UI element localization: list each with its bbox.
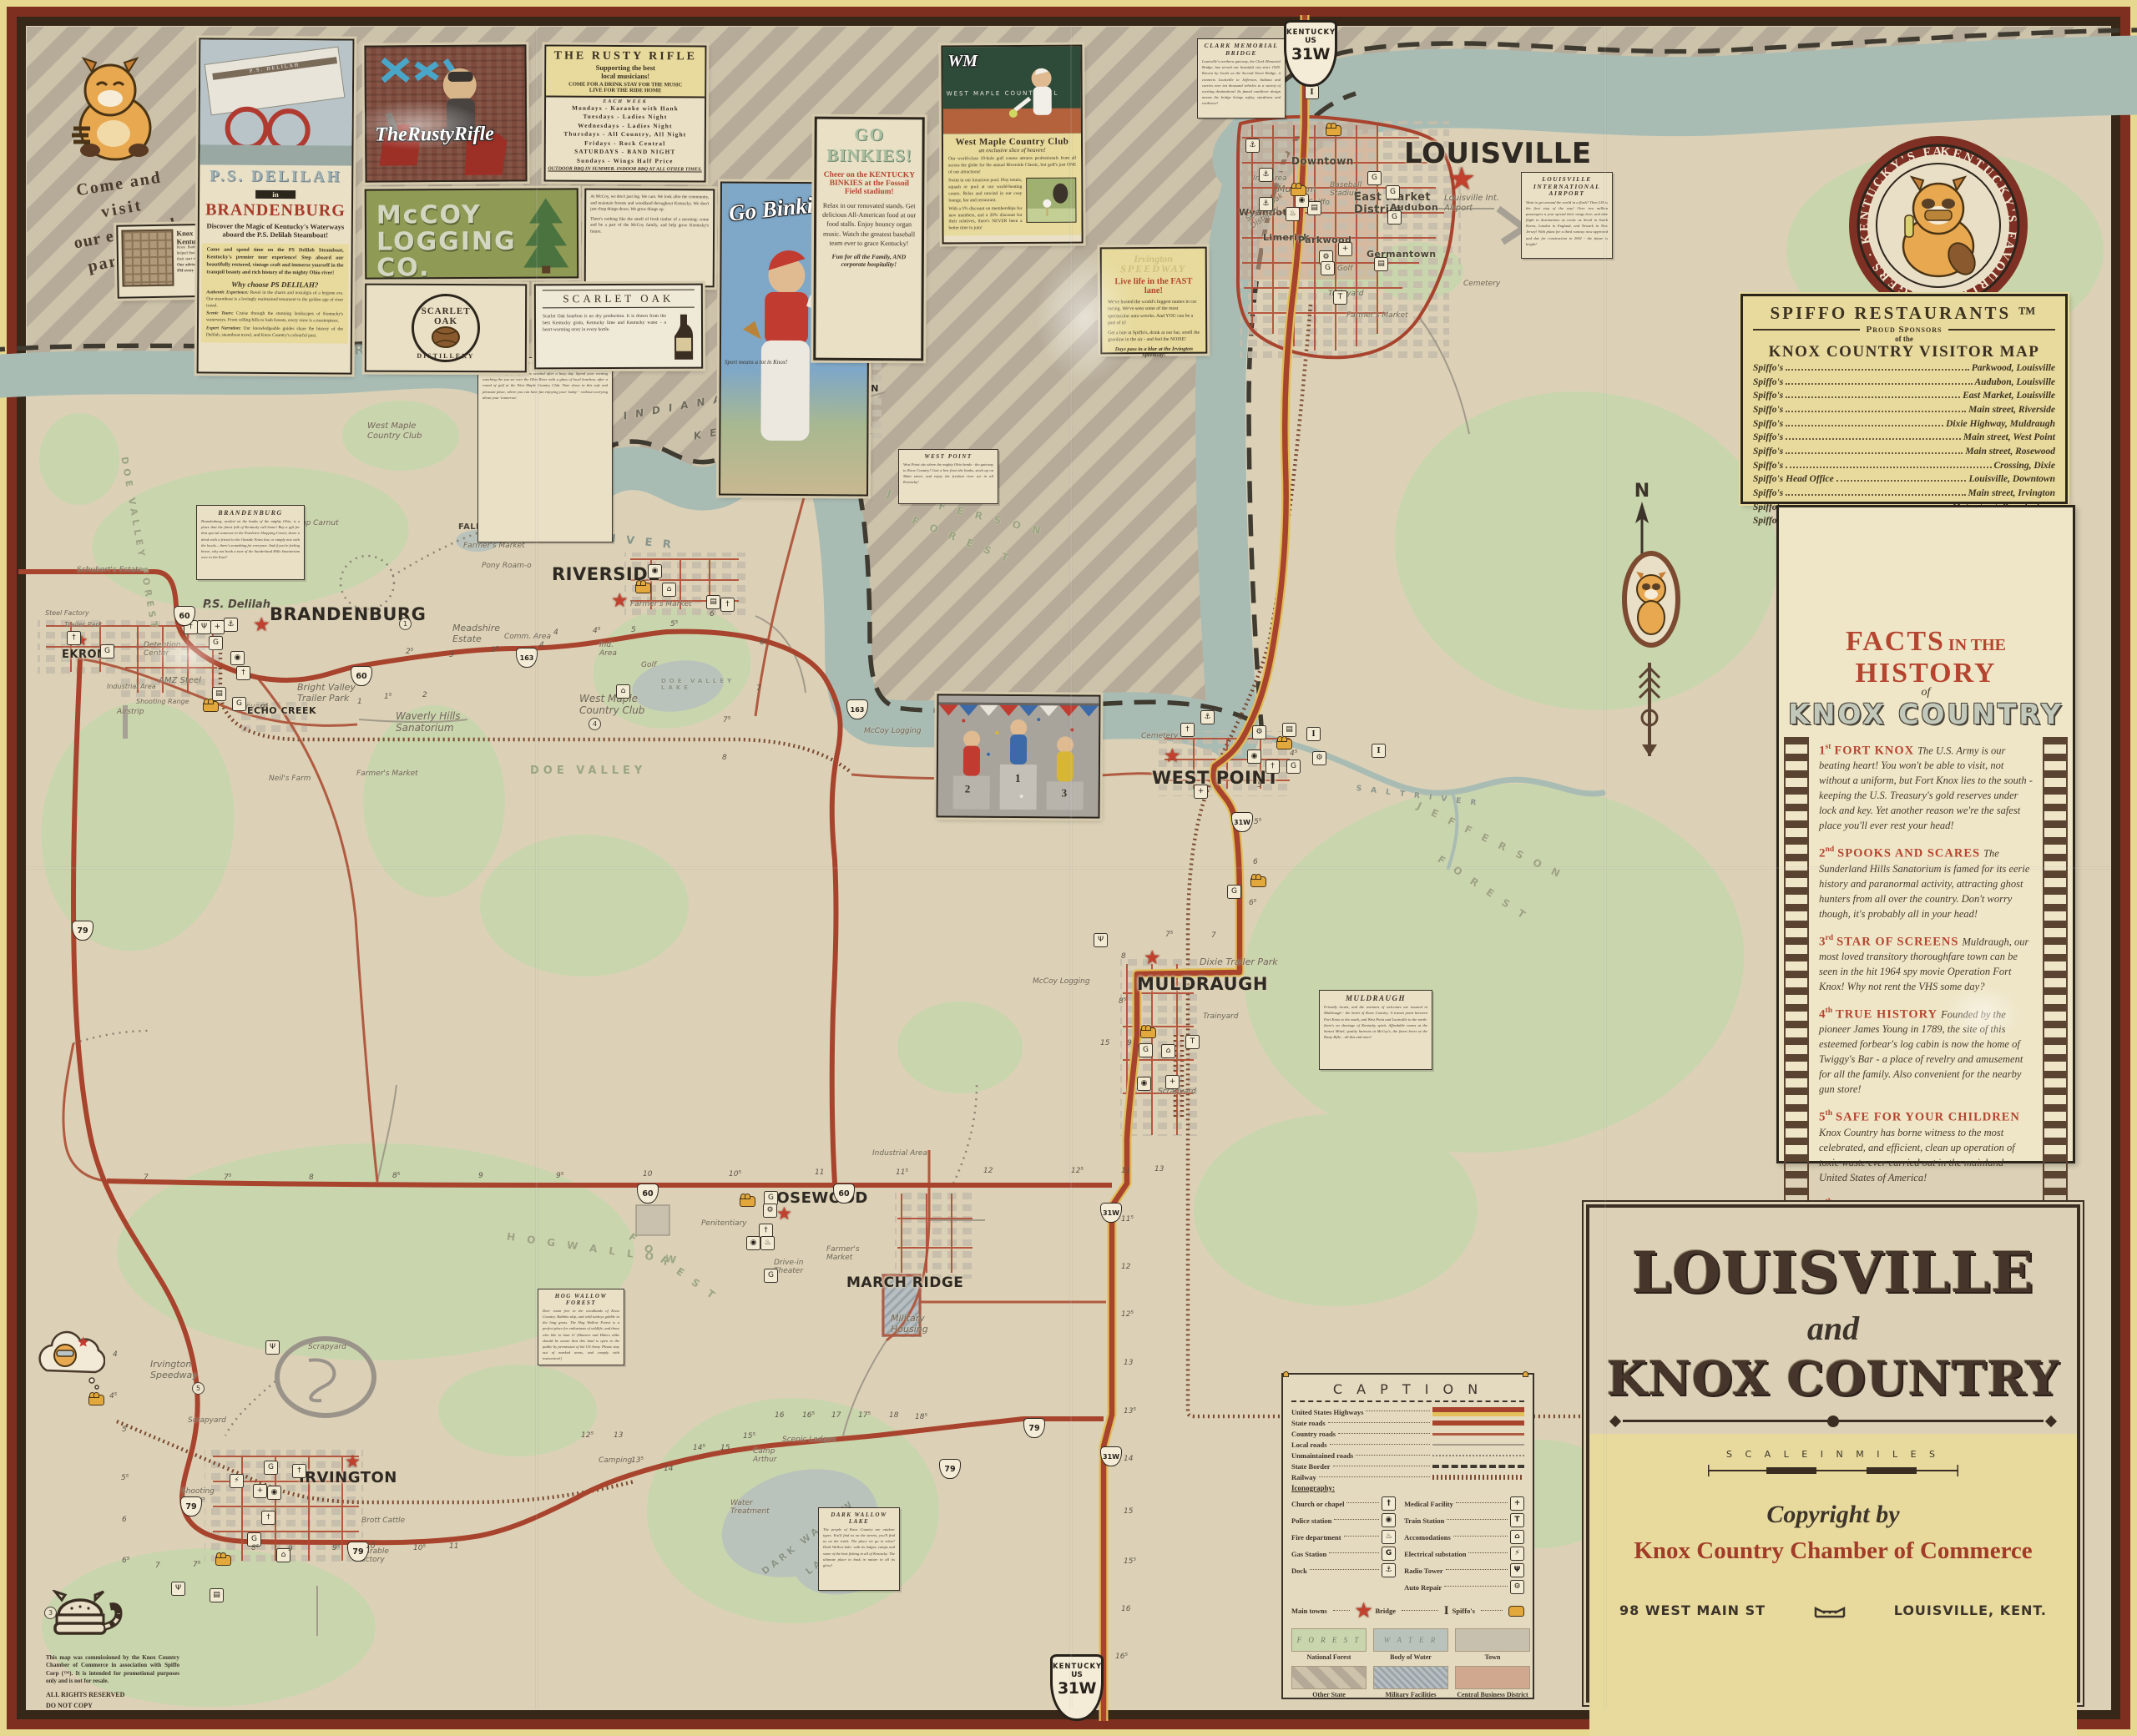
mile-marker: 4⁵ [593, 627, 600, 635]
mile-marker: 8⁵ [392, 1172, 400, 1180]
route-shield: 31W [1231, 812, 1253, 832]
map-church-icon: † [1266, 759, 1280, 774]
mile-marker: 1⁵ [384, 693, 392, 701]
map-bridge-icon: I [1306, 727, 1321, 741]
mile-marker: 7⁵ [723, 716, 730, 724]
map-label: Camp Arthur [753, 1447, 777, 1465]
map-label: Steel Factory [45, 609, 89, 617]
map-note-title: MULDRAUGH [1324, 994, 1427, 1002]
route-shield: 163 [846, 699, 868, 719]
spiffo-mascot [58, 48, 167, 169]
mile-marker: 14 [664, 1465, 673, 1473]
scale-label: S C A L E I N M I L E S [1589, 1449, 2077, 1460]
map-note-body: The people of Knox Country are outdoor t… [823, 1527, 895, 1568]
map-note-body: Deer roam free in the woodlands of Knox … [543, 1308, 619, 1361]
map-label: Cemetery [1463, 280, 1500, 288]
mile-marker: 6 [710, 610, 715, 618]
map-label: Drive-in Theater [774, 1259, 803, 1276]
map-church-icon: † [236, 666, 250, 680]
map-label: P.S. Delilah [203, 599, 270, 612]
map-gas-icon: G [1139, 1043, 1153, 1057]
map-radio-icon: Ψ [1094, 933, 1108, 947]
spiffo-restaurant-icon [1276, 739, 1292, 749]
mile-marker: 7 [144, 1173, 149, 1182]
spiffo-face-icon [1811, 1600, 1849, 1620]
mile-marker: 4 [553, 628, 558, 637]
copyright-holder: Knox Country Chamber of Commerce [1589, 1537, 2077, 1565]
map-bed-icon: ⌂ [662, 583, 676, 597]
ps-delilah-ad: P.S. DELILAH P.S. DELILAH in BRANDENBURG… [197, 38, 355, 374]
map-police-icon: ◉ [648, 564, 662, 578]
legend-icons-left: Church or chapel†Police station◉Fire dep… [1291, 1494, 1396, 1597]
mile-marker: 7 [155, 1562, 160, 1570]
map-auto-icon: ⚙ [763, 1204, 777, 1218]
mile-marker: 5 [1257, 781, 1262, 790]
map-note-box: DARK WALLOW LAKEThe people of Knox Count… [818, 1507, 900, 1591]
mile-marker: 8 [722, 754, 727, 762]
map-gas-icon: G [1321, 261, 1335, 275]
map-auto-icon: ⚙ [1252, 725, 1266, 739]
map-note-title: LOUISVILLE INTERNATIONAL AIRPORT [1526, 176, 1608, 198]
map-label: Dixie Trailer Park [1200, 957, 1278, 968]
map-note-box: RIVERSIDERiverside: the perfect place to… [477, 357, 613, 542]
map-label: Farmer's Market [463, 542, 525, 550]
mile-marker: 11⁵ [896, 1168, 908, 1177]
map-note-body: West Point sits where the mighty Ohio be… [903, 462, 993, 485]
mile-marker: 9 [1127, 1039, 1132, 1047]
rusty-schedule: Mondays - Karaoke with HankTuesdays - La… [548, 104, 703, 166]
map-med-icon: + [253, 1484, 267, 1498]
route-shield: 79 [72, 921, 93, 941]
map-label: Penitentiary [701, 1219, 747, 1228]
map-label: Schubert's Estate [77, 566, 143, 574]
map-note-box: HOG WALLOW FORESTDeer roam free in the w… [538, 1289, 624, 1365]
mile-marker: 7⁵ [224, 1173, 231, 1182]
spiffo-restaurant-icon [635, 583, 651, 593]
mile-marker: 7 [1211, 931, 1216, 940]
map-note-body: Louisville's northern gateway, the Clark… [1202, 58, 1281, 106]
mile-marker: 8⁵ [1119, 997, 1126, 1006]
circled-number: 5 [192, 1382, 205, 1395]
commission-note: This map was commissioned by the Knox Co… [46, 1654, 179, 1709]
mile-marker: 12⁵ [581, 1431, 594, 1440]
map-note-body: Want to get around the world in a flash?… [1526, 199, 1608, 247]
rusty-rifle-photo-ad: TheRustyRifle [364, 44, 527, 182]
mile-marker: 17 [831, 1411, 841, 1420]
legend-road-rows: United States HighwaysState roadsCountry… [1291, 1407, 1524, 1481]
map-gas-icon: G [232, 697, 246, 711]
mile-marker: 10⁵ [413, 1544, 426, 1552]
mile-marker: 5 [122, 1426, 127, 1434]
spiffo-restaurant-icon [740, 1196, 755, 1207]
map-label: Golf [1337, 265, 1352, 273]
spiffo-restaurant-icon [1291, 185, 1306, 196]
mile-marker: 12⁵ [1121, 1310, 1134, 1319]
map-label: Detention Center [144, 641, 180, 659]
mile-marker: 0⁵ [260, 704, 268, 712]
map-label: Industrial Area [872, 1149, 927, 1158]
feather-border-right [2043, 737, 2068, 1259]
map-church-icon: † [67, 631, 81, 645]
map-med-icon: + [210, 620, 225, 634]
map-cart-icon: ▤ [706, 595, 720, 609]
map-note-box: CLARK MEMORIAL BRIDGELouisville's northe… [1197, 38, 1286, 119]
map-dock-icon: ⚓ [224, 618, 238, 632]
map-note-body: Riverside: the perfect place to unwind a… [482, 371, 608, 401]
town-star-icon: ★ [611, 591, 629, 610]
map-cart-icon: ▤ [1282, 723, 1296, 737]
map-note-box: LOUISVILLE INTERNATIONAL AIRPORTWant to … [1521, 172, 1613, 259]
kentucky-31w-shield: KENTUCKYUS31W [1284, 20, 1337, 87]
map-label: Irvington Speedway [150, 1360, 198, 1380]
map-dock-icon: ⚓ [1200, 710, 1215, 724]
map-town-label: ECHO CREEK [247, 705, 316, 716]
map-label: McCoy Logging [864, 727, 922, 735]
map-bridge-icon: I [1372, 744, 1386, 758]
circled-number: 4 [589, 718, 601, 730]
mile-marker: 11 [815, 1168, 824, 1177]
mile-marker: 15 [1124, 1507, 1133, 1516]
map-gas-icon: G [1386, 185, 1400, 199]
map-label: Bright Valley Trailer Park [297, 683, 356, 704]
mile-marker: 6⁵ [1249, 899, 1256, 907]
map-label: I N D I A N A [623, 394, 725, 423]
feather-border-left [1784, 737, 1809, 1259]
spiffo-location-list: Spiffo'sParkwood, LouisvilleSpiffo'sAudu… [1753, 361, 2055, 528]
map-police-icon: ◉ [230, 651, 245, 665]
facts-list: 1st FORT KNOX The U.S. Army is our beati… [1809, 737, 2043, 1259]
map-label: Camping [599, 1456, 632, 1465]
map-med-icon: + [1338, 242, 1352, 256]
legend-swatches: F O R E S TNational ForestW A T E RBody … [1291, 1628, 1524, 1698]
circled-number: 1 [399, 618, 412, 630]
map-note-box: WEST POINTWest Point sits where the migh… [898, 449, 998, 504]
spiffo-burger-icon [43, 1590, 127, 1653]
mile-marker: 4⁵ [1290, 749, 1297, 758]
spiffo-restaurant-icon [203, 701, 219, 712]
spiffo-restaurant-icon [215, 1555, 231, 1566]
title-and: and [1589, 1309, 2077, 1348]
map-label: Water Treatment [730, 1499, 770, 1516]
map-radio-icon: Ψ [265, 1340, 280, 1355]
mile-marker: 15⁵ [743, 1432, 755, 1441]
map-label: McCoy Logging [1033, 977, 1090, 986]
mile-marker: 15⁵ [1124, 1557, 1136, 1566]
mile-marker: 18⁵ [915, 1413, 927, 1421]
map-dock-icon: ⚓ [1259, 168, 1273, 182]
map-label: Cemetery [1141, 732, 1178, 740]
map-radio-icon: Ψ [171, 1582, 185, 1596]
map-label: AMZ Steel [159, 676, 201, 686]
spiffo-restaurant-icon [1140, 1027, 1156, 1038]
map-gas-icon: G [100, 644, 114, 659]
map-label: Trainyard [1203, 1012, 1238, 1021]
map-radio-icon: Ψ [197, 620, 211, 634]
mile-marker: 5⁵ [121, 1474, 129, 1482]
map-note-title: BRANDENBURG [201, 509, 300, 517]
delilah-title: P.S. DELILAH [205, 167, 346, 186]
spiffo-oval-portrait [1621, 549, 1681, 654]
bottle-icon [673, 313, 695, 361]
map-fire-icon: ♨ [1286, 207, 1300, 221]
mile-marker: 8⁵ [251, 1544, 259, 1552]
ps-delilah-photo: P.S. DELILAH [200, 39, 352, 165]
mile-marker: 9 [288, 1545, 293, 1553]
rusty-logo: TheRustyRifle [375, 124, 494, 147]
mile-marker: 12⁵ [1071, 1167, 1084, 1175]
mccoy-text-ad: At McCoy, we don't just log. We care. We… [584, 189, 715, 288]
map-label: DOE VALLEY LAKE [661, 678, 735, 691]
map-bed-icon: ⌂ [1161, 1044, 1175, 1058]
mile-marker: 8 [309, 1173, 314, 1182]
mile-marker: 15 [1100, 1039, 1109, 1047]
map-label: Farmer's Market [630, 600, 692, 608]
map-cart-icon: ▤ [212, 687, 226, 701]
bank-photo [121, 230, 174, 287]
mile-marker: 16⁵ [802, 1411, 815, 1420]
map-gas-icon: G [209, 636, 223, 650]
mile-marker: 16 [775, 1411, 784, 1420]
map-label: Golf [641, 661, 656, 669]
mile-marker: 10 [366, 1542, 375, 1551]
map-label: Military Housing [891, 1314, 928, 1335]
map-town-label: MULDRAUGH [1137, 974, 1268, 994]
map-fire-icon: ♨ [760, 1236, 775, 1250]
map-label: Comm. Area [504, 633, 551, 641]
map-note-box: BRANDENBURGBrandenburg, nestled on the b… [196, 505, 305, 580]
route-shield: 31W [1100, 1203, 1122, 1223]
mile-marker: 1 [357, 698, 362, 706]
mile-marker: 3⁵ [491, 646, 498, 654]
map-bed-icon: ⌂ [616, 684, 630, 699]
map-note-box: MULDRAUGHFriendly locals, and the warmes… [1319, 990, 1432, 1070]
map-train-icon: T [1333, 290, 1347, 305]
map-note-title: WEST POINT [903, 453, 993, 460]
mile-marker: 6 [1253, 858, 1258, 866]
mile-marker: 6⁵ [760, 638, 767, 647]
route-shield: 79 [180, 1496, 202, 1516]
mile-marker: 10 [643, 1170, 652, 1178]
mile-marker: 9 [478, 1172, 483, 1180]
route-shield: 60 [351, 666, 372, 686]
binkies-caption: Sport means a lot in Knox! [725, 359, 787, 366]
mile-marker: 3 [449, 651, 454, 659]
mile-marker: 5 [631, 626, 636, 634]
map-cart-icon: ▤ [1374, 257, 1388, 271]
mile-marker: 14 [1124, 1455, 1133, 1463]
mile-marker: 7 [756, 684, 761, 693]
map-med-icon: + [1165, 1075, 1180, 1089]
scarlet-oak-bottle-ad: SCARLET OAK Scarlet Oak bourbon is no dr… [534, 284, 703, 370]
mile-marker: 12 [983, 1167, 993, 1175]
map-town-label: IRVINGTON [299, 1469, 397, 1486]
map-label: Farmer's Market [826, 1245, 860, 1263]
mile-marker: 4 [113, 1350, 118, 1359]
map-label: DOE VALLEY FOREST [119, 456, 159, 633]
mile-marker: 11⁵ [1121, 1215, 1134, 1224]
map-label: Neil's Farm [269, 775, 311, 783]
west-maple-ad: WM WEST MAPLE COUNTRY CL West Maple Coun… [941, 45, 1083, 245]
map-town-label: MARCH RIDGE [846, 1274, 963, 1291]
dreaming-spiffo-sticker [30, 1320, 105, 1401]
mile-marker: 13⁵ [1124, 1407, 1136, 1416]
mile-marker: 4 [539, 641, 544, 649]
map-label: Shooting Range [136, 698, 189, 705]
map-elec-icon: ⚡ [230, 1474, 244, 1488]
map-gas-icon: G [264, 1461, 278, 1475]
speedway-photo-ad: 2 1 3 [936, 694, 1100, 818]
mile-marker: 6⁵ [122, 1557, 129, 1565]
route-shield: 31W [1100, 1446, 1122, 1466]
map-label: Ind. Area [599, 641, 617, 659]
map-cart-icon: ▤ [1307, 201, 1321, 215]
spiffo-restaurant-icon [1250, 876, 1266, 887]
mile-marker: 13⁵ [631, 1456, 644, 1465]
map-label: Scrapyard [308, 1343, 346, 1351]
town-star-icon: ★ [1447, 164, 1476, 195]
mile-marker: 14⁵ [693, 1444, 705, 1452]
mile-marker: 11 [449, 1542, 458, 1551]
map-police-icon: ◉ [1247, 749, 1261, 764]
map-note-title: DARK WALLOW LAKE [823, 1511, 895, 1525]
map-police-icon: ◉ [267, 1486, 281, 1500]
mile-marker: 8 [1121, 952, 1126, 961]
map-church-icon: † [1180, 723, 1195, 737]
mile-marker: 9⁵ [556, 1172, 563, 1180]
mile-marker: 12 [1121, 1263, 1130, 1271]
map-label: F O R E S T [626, 1232, 720, 1305]
map-label: Pony Roam-o [482, 562, 532, 570]
map-gas-icon: G [1227, 885, 1241, 899]
spiffo-restaurants-panel: SPIFFO RESTAURANTS ™ Proud Sponsors of t… [1740, 294, 2068, 504]
map-gas-icon: G [1367, 171, 1382, 185]
map-label: West Maple Country Club [367, 421, 422, 441]
legend-title: C A P T I O N [1291, 1381, 1524, 1397]
legend-icons-right: Medical Facility+Train StationTAccomodat… [1404, 1494, 1524, 1597]
map-label: DOE VALLEY [530, 765, 646, 778]
mile-marker: 11 [1121, 1167, 1130, 1175]
mile-marker: 13 [1124, 1359, 1133, 1367]
map-note-body: Friendly locals, and the warmest of welc… [1324, 1004, 1427, 1040]
legend-panel: C A P T I O N United States HighwaysStat… [1281, 1373, 1534, 1699]
map-label: Farmer's Market [1346, 311, 1408, 320]
title-block: LOUISVILLE and KNOX COUNTRY S C A L E I … [1586, 1204, 2080, 1703]
facts-panel: FACTS IN THE HISTORY of KNOX COUNTRY 1st… [1776, 505, 2075, 1163]
title-louisville: LOUISVILLE [1589, 1239, 2077, 1305]
map-note-body: Brandenburg, nestled on the banks of the… [201, 518, 300, 560]
map-label: Brott Cattle [361, 1516, 405, 1525]
town-star-icon: ★ [1144, 948, 1161, 967]
mile-marker: 5⁵ [670, 620, 678, 628]
spiffo-restaurant-icon [1326, 125, 1341, 136]
city: LOUISVILLE, KENT. [1894, 1602, 2047, 1618]
barrel-icon [431, 326, 461, 348]
map-label: Trailer Park [64, 621, 102, 628]
map-church-icon: † [720, 598, 735, 612]
copyright-by: Copyright by [1589, 1501, 2077, 1529]
kentucky-31w-shield: KENTUCKYUS31W [1050, 1654, 1104, 1721]
map-bridge-icon: I [1305, 85, 1319, 99]
rusty-rifle-text-ad: THE RUSTY RIFLE Supporting the best loca… [544, 44, 707, 182]
mile-marker: 7⁵ [1165, 931, 1173, 939]
mile-marker: 6 [122, 1516, 127, 1524]
mile-marker: 7⁵ [193, 1561, 200, 1569]
map-gas-icon: G [1387, 210, 1402, 225]
map-train-icon: T [1185, 1035, 1200, 1049]
map-label: Waverly Hills Sanatorium [396, 711, 461, 734]
map-town-label: LOUISVILLE [1404, 137, 1592, 170]
map-auto-icon: ⚙ [1312, 751, 1326, 765]
title-knox-country: KNOX COUNTRY [1589, 1351, 2077, 1406]
address: 98 WEST MAIN ST [1619, 1602, 1766, 1618]
map-note-title: HOG WALLOW FOREST [543, 1293, 619, 1306]
map-gas-icon: G [764, 1269, 778, 1283]
map-label: Airstrip [117, 708, 144, 716]
mile-marker: 9⁵ [332, 1544, 340, 1552]
mile-marker: 16⁵ [1115, 1653, 1128, 1661]
map-label: Farmer's Market [356, 770, 418, 778]
map-note-title: CLARK MEMORIAL BRIDGE [1202, 43, 1281, 57]
scale-bar [1708, 1463, 1958, 1478]
map-church-icon: † [292, 1464, 306, 1478]
town-star-icon: ★ [253, 615, 270, 634]
town-star-icon: ★ [345, 1453, 361, 1471]
map-label: Scrapyard [188, 1416, 226, 1425]
map-police-icon: ◉ [1137, 1077, 1151, 1091]
speedway-text-panel: Irvington SPEEDWAY Live life in the FAST… [1100, 247, 1208, 355]
mile-marker: 18 [889, 1411, 898, 1420]
mile-marker: 13 [1154, 1165, 1164, 1173]
mile-marker: 5⁵ [1254, 818, 1261, 826]
mile-marker: 4⁵ [109, 1392, 117, 1400]
scarlet-oak-logo-ad: SCARLET OAK DISTILLERY [365, 284, 527, 373]
mile-marker: 17⁵ [858, 1411, 871, 1420]
route-shield: 79 [939, 1459, 961, 1479]
map-cart-icon: ▤ [210, 1588, 224, 1602]
map-label: West Maple Country Club [579, 694, 644, 717]
map-label: F O R E S T [1435, 854, 1530, 923]
map-police-icon: ◉ [746, 1236, 760, 1250]
map-med-icon: + [1194, 785, 1208, 799]
mccoy-banner-ad: McCOYLOGGING CO. [365, 188, 579, 279]
town-star-icon: ★ [776, 1205, 792, 1223]
map-church-icon: † [261, 1511, 275, 1525]
mile-marker: 10⁵ [729, 1170, 741, 1178]
mile-marker: 2 [422, 691, 427, 699]
mile-marker: 16 [1121, 1605, 1130, 1613]
map-gas-icon: G [1286, 759, 1301, 774]
route-shield: 60 [637, 1183, 659, 1204]
map-dock-icon: ⚓ [1259, 197, 1273, 211]
mile-marker: 15 [720, 1444, 730, 1452]
map-label: Industrial Area [107, 683, 156, 690]
mile-marker: 13 [614, 1431, 623, 1440]
map-label: Meadshire Estate [452, 623, 500, 644]
route-shield: 79 [1023, 1418, 1045, 1438]
pine-tree-icon [517, 194, 575, 273]
town-star-icon: ★ [1164, 746, 1181, 765]
feather-arrow-decoration [1633, 659, 1666, 764]
map-label: Scenic Lodges [782, 1436, 836, 1444]
mile-marker: 2⁵ [406, 648, 413, 656]
map-label: Downtown [1291, 156, 1354, 168]
binkies-text-panel: GO BINKIES! Cheer on the KENTUCKY BINKIE… [813, 117, 925, 361]
vintage-map-poster: KENTUCKY'S FAVOURITE BURGERS · KENTUCKY'… [0, 0, 2137, 1736]
map-dock-icon: ⚓ [1245, 139, 1260, 153]
